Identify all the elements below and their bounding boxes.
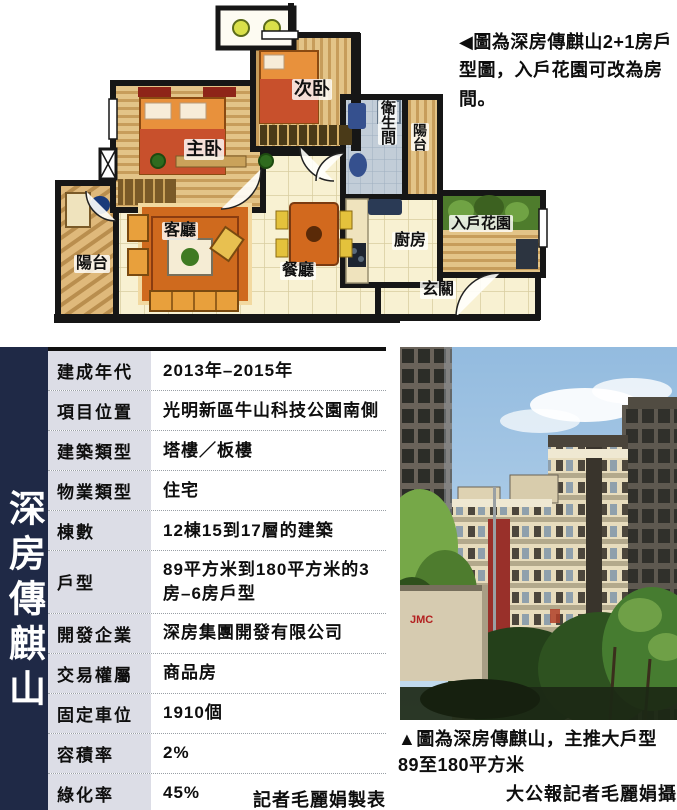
project-title-text: 深房傳麒山	[6, 489, 43, 714]
table-row: 棟數12棟15到17層的建築	[48, 511, 386, 551]
newspaper-clipping: 主卧 次卧 衛生間 陽台 廚房 入戶花園 玄關 餐廳 客廳 陽台 ◀圖為深房傳麒…	[0, 0, 677, 810]
table-row: 容積率2%	[48, 734, 386, 774]
row-value: 1910個	[151, 694, 386, 733]
property-info-table: 建成年代2013年–2015年 項目位置光明新區牛山科技公園南側 建築類型塔樓／…	[48, 347, 386, 810]
row-label: 建成年代	[48, 351, 151, 390]
property-info-panel: 深房傳麒山 建成年代2013年–2015年 項目位置光明新區牛山科技公園南側 建…	[0, 347, 386, 810]
table-row: 交易權屬商品房	[48, 654, 386, 694]
row-value: 住宅	[151, 471, 386, 510]
photo-caption: ▲圖為深房傳麒山，主推大戶型89至180平方米	[398, 727, 677, 778]
table-row: 建成年代2013年–2015年	[48, 351, 386, 391]
room-label-master-bedroom: 主卧	[184, 139, 224, 160]
row-label: 容積率	[48, 734, 151, 773]
row-label: 戶型	[48, 551, 151, 613]
row-label: 建築類型	[48, 431, 151, 470]
building-photo-drawing: JMC	[400, 347, 677, 720]
table-row: 項目位置光明新區牛山科技公園南側	[48, 391, 386, 431]
row-value: 12棟15到17層的建築	[151, 511, 386, 550]
building-photo: JMC	[400, 347, 677, 720]
row-value: 2%	[151, 734, 386, 773]
project-title-vertical: 深房傳麒山	[0, 347, 48, 810]
row-value: 塔樓／板樓	[151, 431, 386, 470]
row-value: 商品房	[151, 654, 386, 693]
row-value: 2013年–2015年	[151, 351, 386, 390]
room-label-dining-room: 餐廳	[280, 262, 316, 280]
table-credit: 記者毛麗娟製表	[0, 786, 386, 810]
photo-credit: 大公報記者毛麗娟攝	[398, 780, 677, 806]
row-value: 89平方米到180平方米的3房–6房戶型	[151, 551, 386, 613]
floor-plan-caption: ◀圖為深房傳麒山2+1房戶型圖，入戶花園可改為房間。	[459, 28, 675, 113]
row-label: 物業類型	[48, 471, 151, 510]
row-label: 固定車位	[48, 694, 151, 733]
room-label-balcony-left: 陽台	[74, 255, 110, 273]
room-label-second-bedroom: 次卧	[292, 79, 332, 100]
table-row: 建築類型塔樓／板樓	[48, 431, 386, 471]
room-label-bathroom: 衛生間	[378, 100, 397, 145]
row-label: 開發企業	[48, 614, 151, 653]
room-label-foyer: 玄關	[420, 281, 456, 299]
table-row: 戶型89平方米到180平方米的3房–6房戶型	[48, 551, 386, 614]
table-row: 物業類型住宅	[48, 471, 386, 511]
room-label-kitchen: 廚房	[392, 232, 428, 250]
row-value: 光明新區牛山科技公園南側	[151, 391, 386, 430]
row-label: 棟數	[48, 511, 151, 550]
row-label: 交易權屬	[48, 654, 151, 693]
row-label: 項目位置	[48, 391, 151, 430]
room-label-entry-garden: 入戶花園	[449, 215, 513, 232]
truck-logo-text: JMC	[410, 614, 433, 626]
table-row: 固定車位1910個	[48, 694, 386, 734]
room-label-balcony-right: 陽台	[411, 123, 429, 151]
row-value: 深房集團開發有限公司	[151, 614, 386, 653]
room-label-living-room: 客廳	[162, 222, 198, 240]
table-row: 開發企業深房集團開發有限公司	[48, 614, 386, 654]
